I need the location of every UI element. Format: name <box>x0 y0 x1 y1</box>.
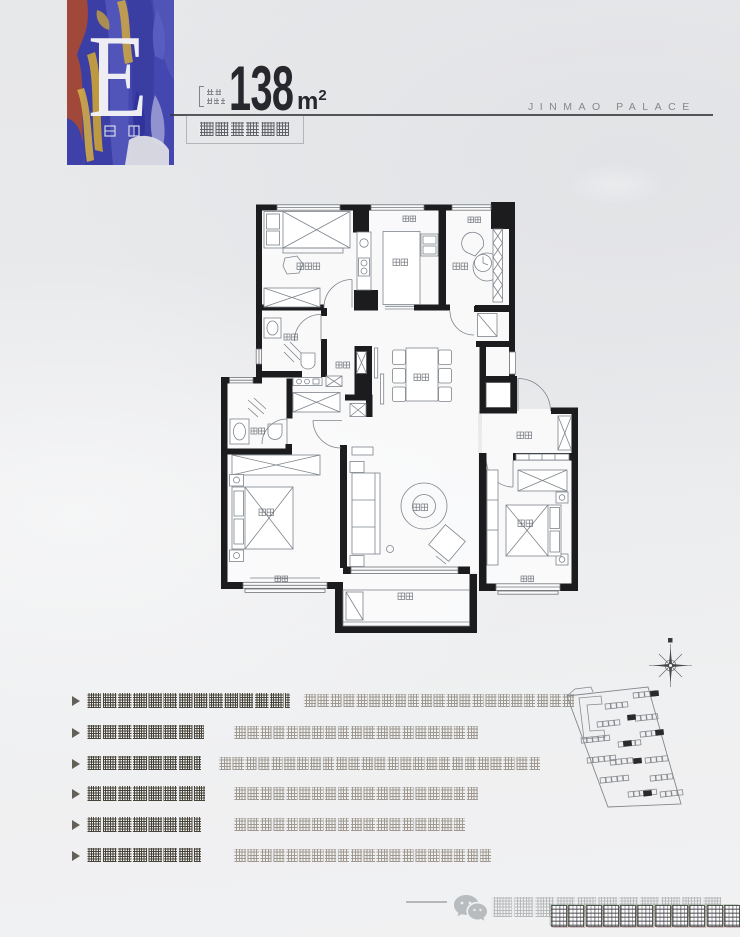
svg-text:E: E <box>88 10 148 142</box>
